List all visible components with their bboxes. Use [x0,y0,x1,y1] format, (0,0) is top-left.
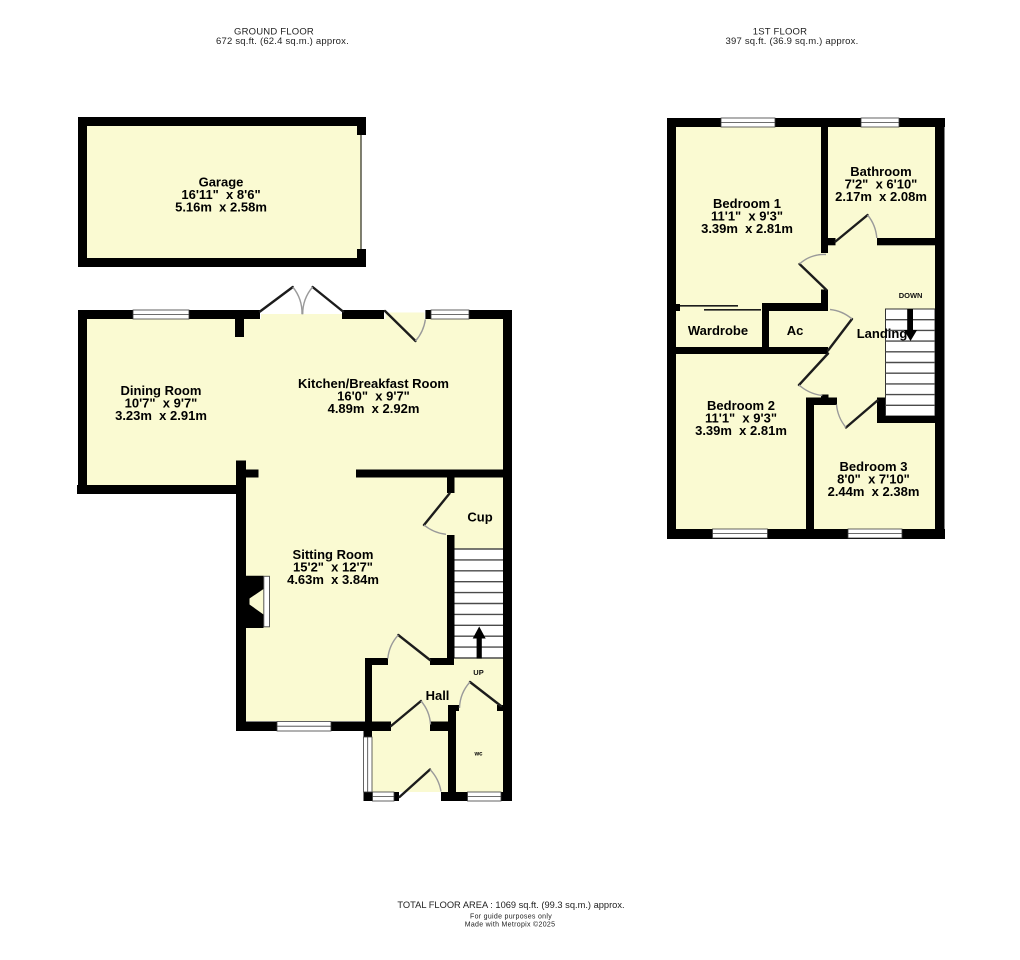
svg-text:Cup: Cup [467,510,492,525]
svg-text:For guide purposes only: For guide purposes only [470,914,552,921]
svg-text:Hall: Hall [426,688,450,703]
svg-text:672 sq.ft. (62.4 sq.m.) approx: 672 sq.ft. (62.4 sq.m.) approx. [216,36,349,47]
svg-text:4.89m x 2.92m: 4.89m x 2.92m [328,401,420,416]
svg-text:4.63m x 3.84m: 4.63m x 3.84m [287,572,379,587]
svg-text:3.39m x 2.81m: 3.39m x 2.81m [701,221,793,236]
svg-text:397 sq.ft. (36.9 sq.m.) approx: 397 sq.ft. (36.9 sq.m.) approx. [726,36,859,47]
svg-text:3.23m x 2.91m: 3.23m x 2.91m [115,408,207,423]
svg-text:5.16m x 2.58m: 5.16m x 2.58m [175,200,267,215]
svg-text:Made with Metropix ©2025: Made with Metropix ©2025 [465,921,556,929]
svg-text:Ac: Ac [787,323,804,338]
svg-text:3.39m x 2.81m: 3.39m x 2.81m [695,423,787,438]
svg-text:Landing: Landing [857,326,908,341]
svg-text:DOWN: DOWN [899,291,923,300]
svg-text:2.17m x 2.08m: 2.17m x 2.08m [835,189,927,204]
svg-text:TOTAL FLOOR AREA : 1069 sq.ft.: TOTAL FLOOR AREA : 1069 sq.ft. (99.3 sq.… [397,900,624,910]
svg-text:2.44m x 2.38m: 2.44m x 2.38m [828,484,920,499]
svg-text:Wardrobe: Wardrobe [688,323,748,338]
svg-text:UP: UP [473,668,483,677]
svg-text:wc: wc [473,752,483,758]
